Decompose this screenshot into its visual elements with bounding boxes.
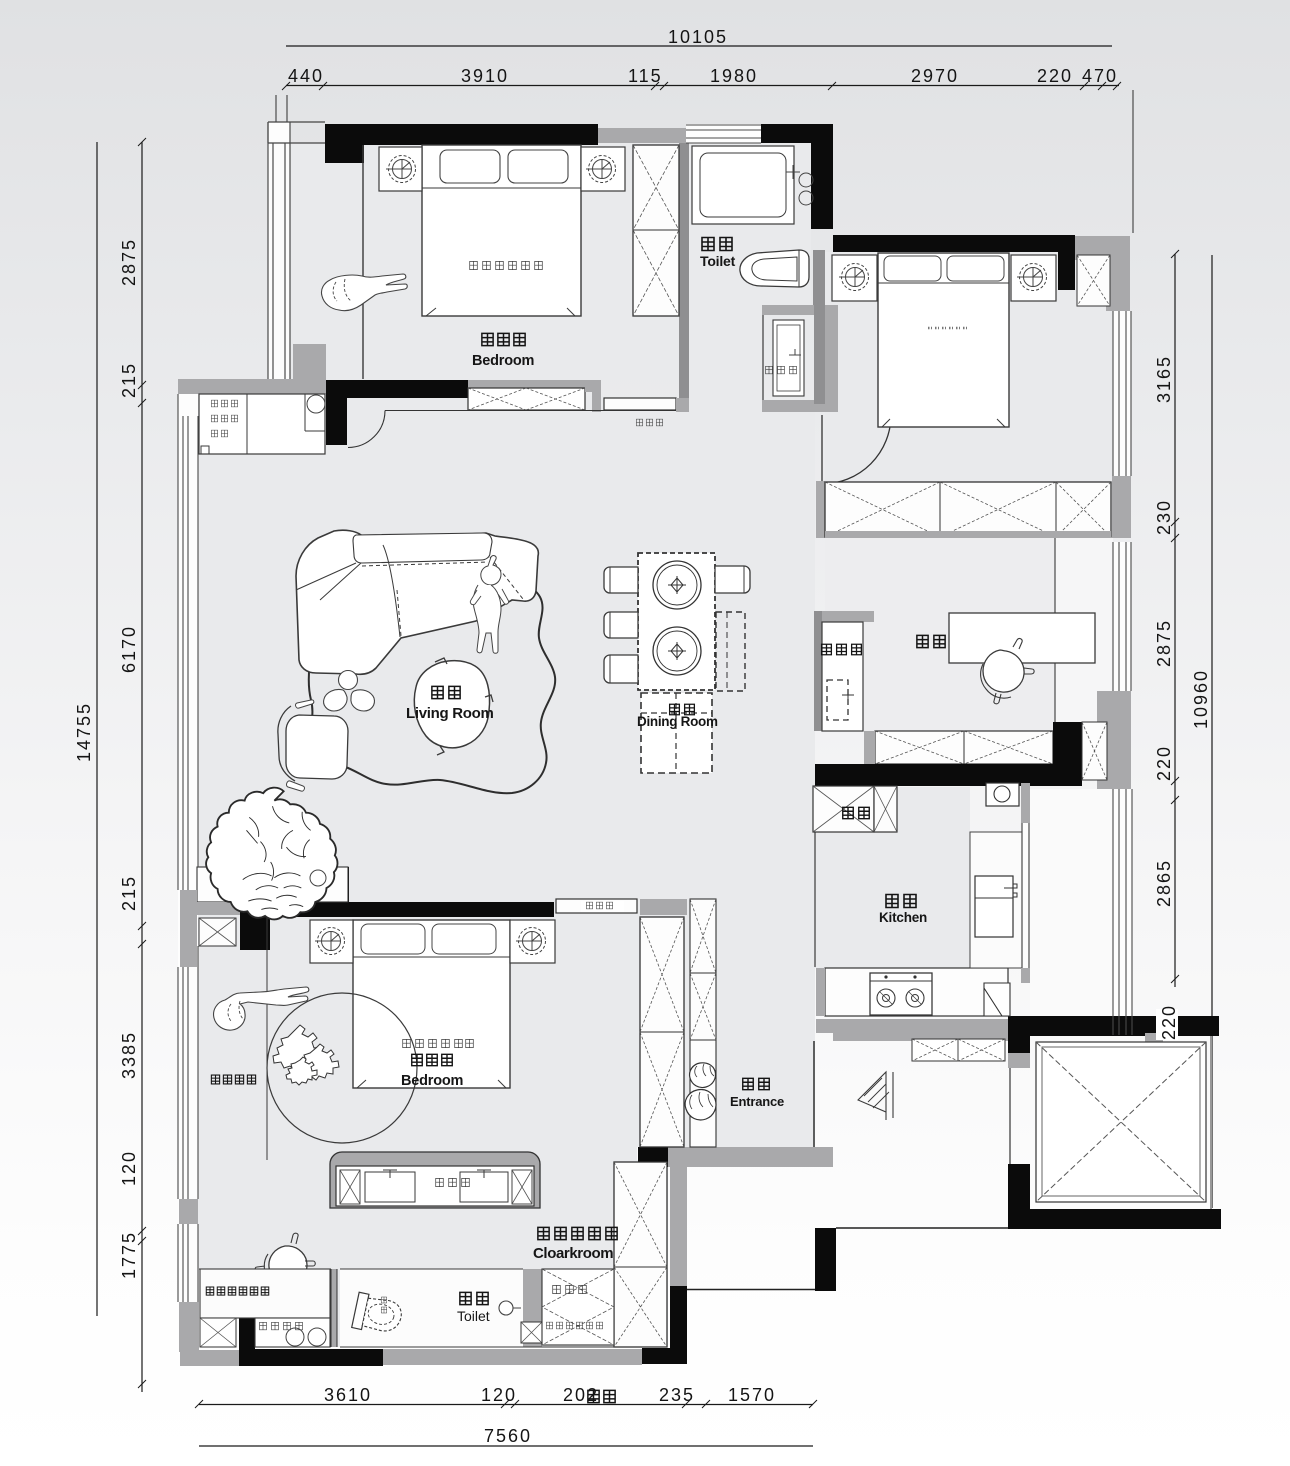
svg-text:Toilet: Toilet xyxy=(457,1308,490,1324)
svg-text:2865: 2865 xyxy=(1154,859,1174,907)
svg-text:3610: 3610 xyxy=(324,1385,372,1405)
svg-text:Cloarkroom: Cloarkroom xyxy=(533,1245,613,1262)
svg-text:Kitchen: Kitchen xyxy=(879,910,927,925)
svg-text:215: 215 xyxy=(119,362,139,398)
svg-text:115: 115 xyxy=(628,66,663,86)
svg-text:2970: 2970 xyxy=(911,66,959,86)
svg-text:220: 220 xyxy=(1154,745,1174,781)
svg-text:14755: 14755 xyxy=(74,702,94,762)
svg-text:3910: 3910 xyxy=(461,66,509,86)
svg-text:10105: 10105 xyxy=(668,27,728,47)
svg-text:Bedroom: Bedroom xyxy=(401,1073,463,1089)
svg-text:2875: 2875 xyxy=(119,238,139,286)
svg-text:1775: 1775 xyxy=(119,1231,139,1279)
svg-text:1980: 1980 xyxy=(710,66,758,86)
svg-text:120: 120 xyxy=(481,1385,517,1405)
svg-text:220: 220 xyxy=(1159,1004,1179,1040)
svg-text:Entrance: Entrance xyxy=(730,1094,784,1109)
svg-text:6170: 6170 xyxy=(119,625,139,673)
svg-text:470: 470 xyxy=(1082,66,1118,86)
svg-text:120: 120 xyxy=(119,1150,139,1186)
svg-text:1570: 1570 xyxy=(728,1385,776,1405)
svg-text:2875: 2875 xyxy=(1154,619,1174,667)
svg-text:Toilet: Toilet xyxy=(700,253,736,269)
svg-text:235: 235 xyxy=(659,1385,695,1405)
svg-text:3165: 3165 xyxy=(1154,355,1174,403)
svg-text:7560: 7560 xyxy=(484,1426,532,1446)
svg-text:220: 220 xyxy=(1037,66,1073,86)
svg-text:10960: 10960 xyxy=(1191,669,1211,729)
svg-text:Dining Room: Dining Room xyxy=(637,714,718,729)
svg-text:3385: 3385 xyxy=(119,1031,139,1079)
svg-text:Bedroom: Bedroom xyxy=(472,353,534,369)
svg-text:440: 440 xyxy=(288,66,324,86)
svg-text:215: 215 xyxy=(119,875,139,911)
svg-text:Living Room: Living Room xyxy=(406,705,494,722)
svg-text:230: 230 xyxy=(1154,499,1174,535)
